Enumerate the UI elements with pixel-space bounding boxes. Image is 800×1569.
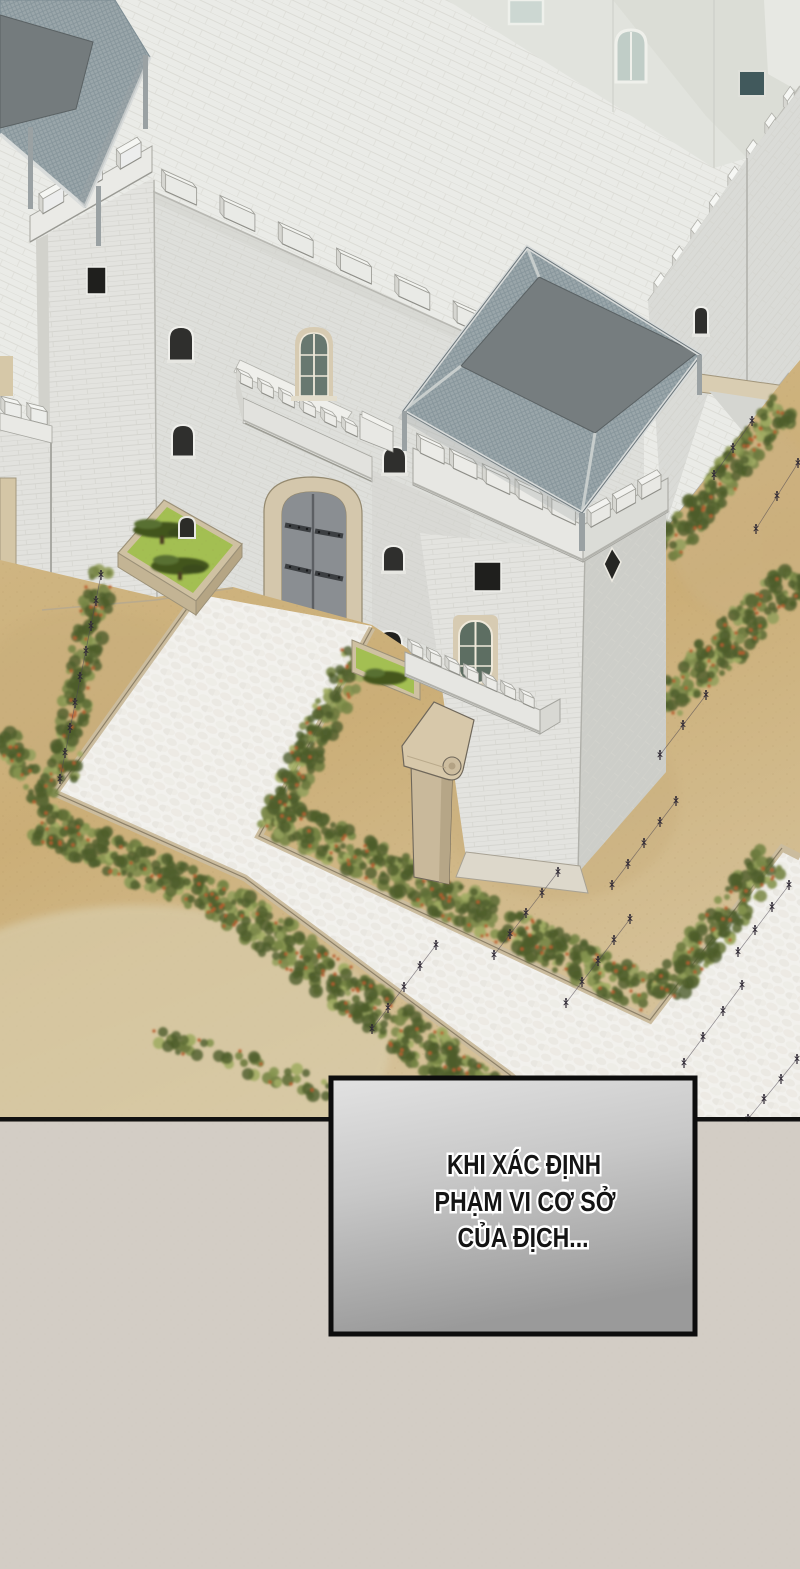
svg-text:KHI XÁC ĐỊNH: KHI XÁC ĐỊNH	[447, 1149, 601, 1180]
svg-text:CỦA ĐỊCH...: CỦA ĐỊCH...	[458, 1221, 589, 1253]
svg-text:PHẠM VI CƠ SỞ: PHẠM VI CƠ SỞ	[435, 1185, 616, 1217]
